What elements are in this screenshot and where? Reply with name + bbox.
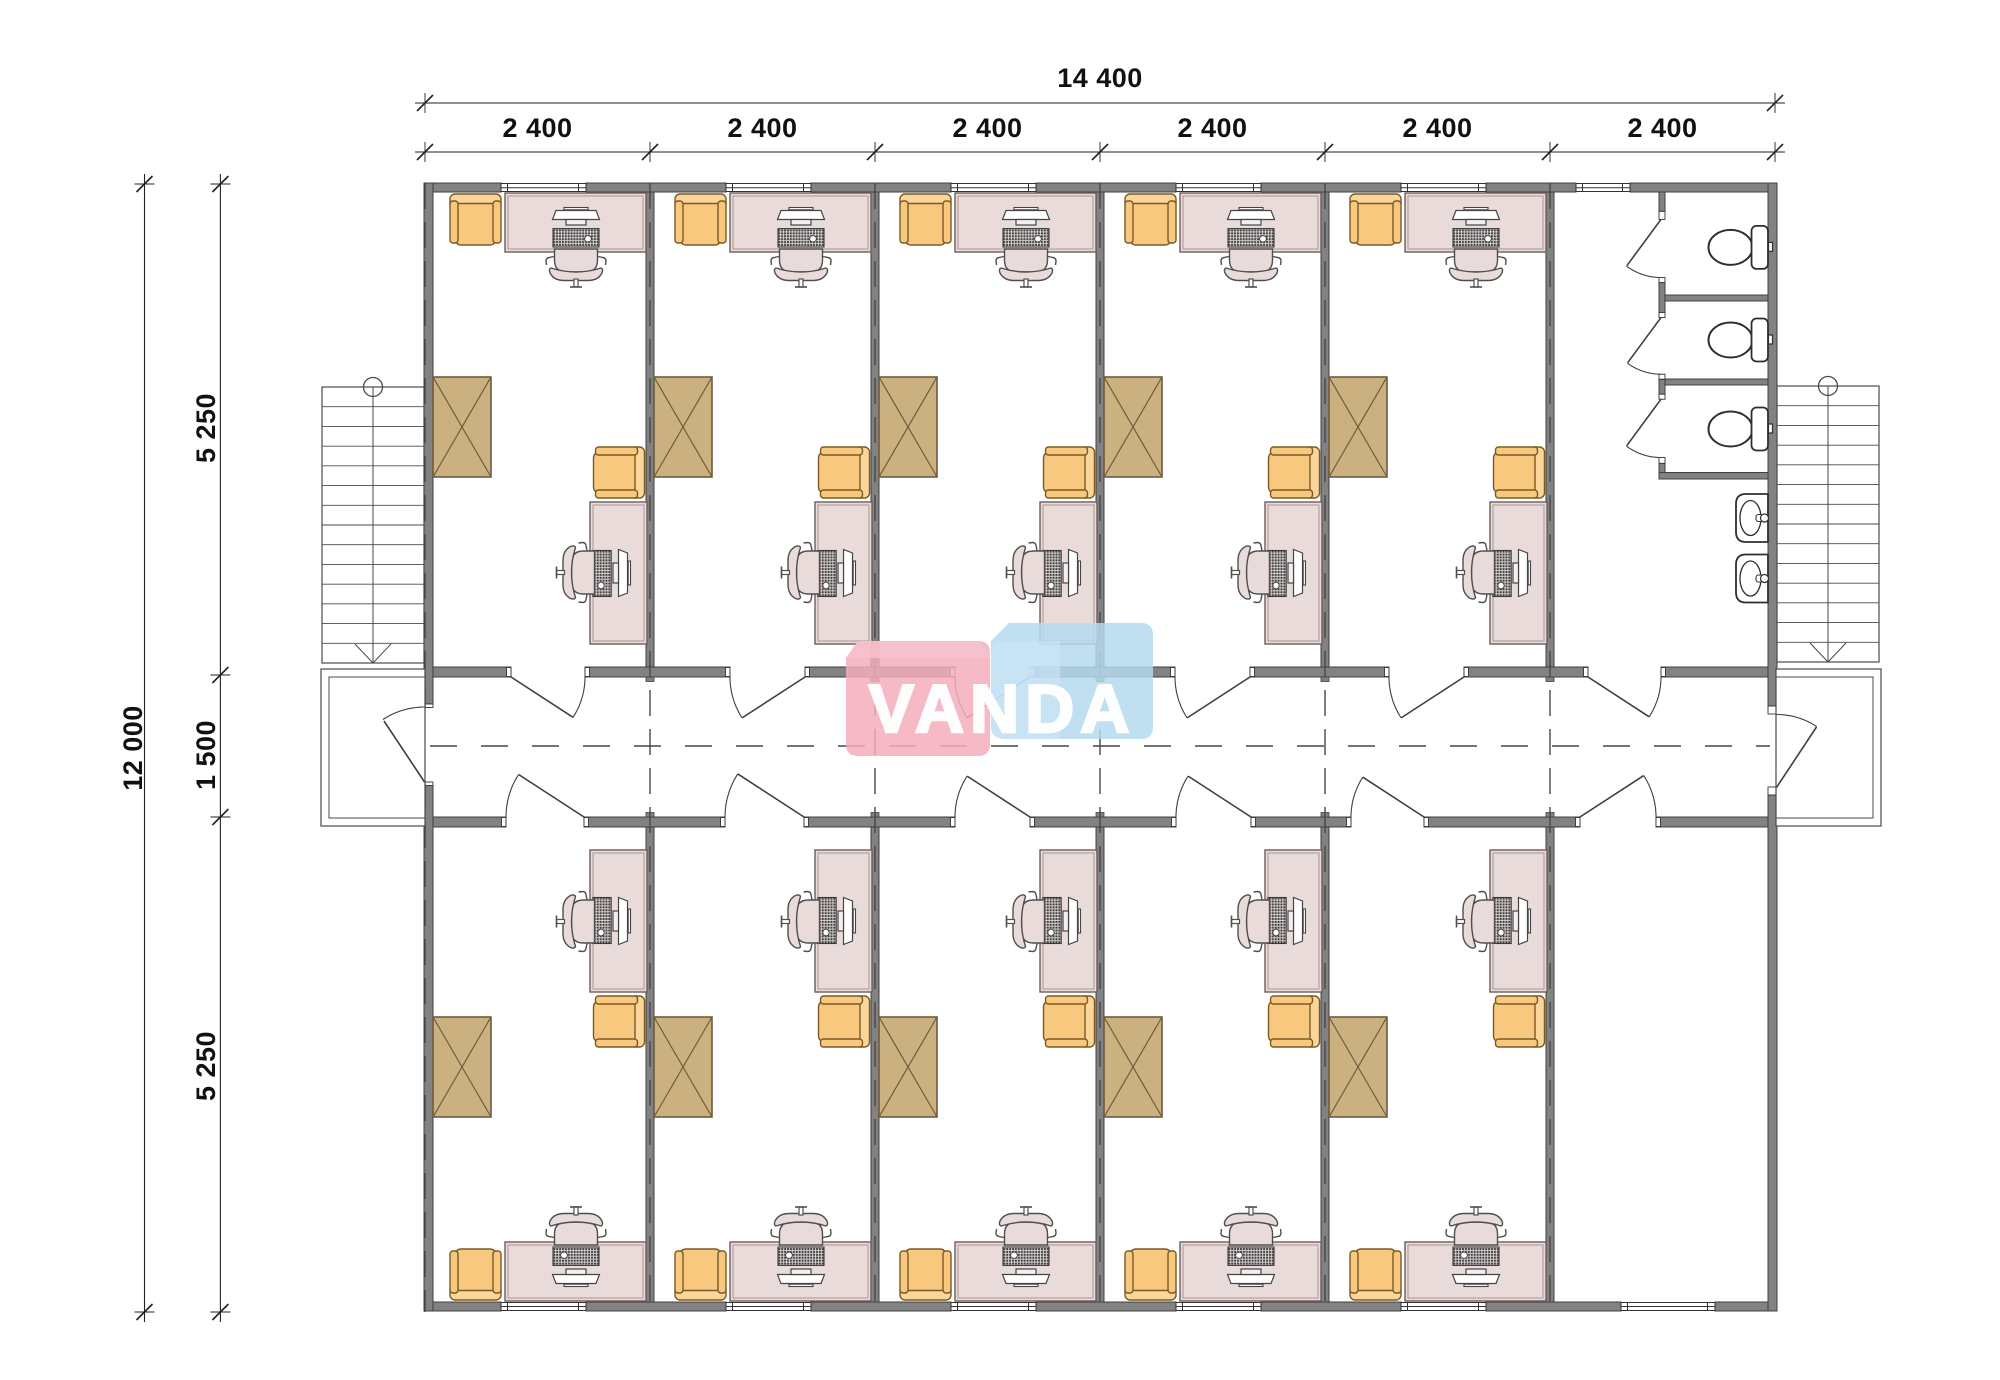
- svg-text:12 000: 12 000: [118, 705, 148, 791]
- svg-text:2 400: 2 400: [1177, 113, 1247, 143]
- svg-text:2 400: 2 400: [727, 113, 797, 143]
- svg-text:1 500: 1 500: [191, 720, 221, 790]
- svg-text:2 400: 2 400: [1627, 113, 1697, 143]
- svg-text:2 400: 2 400: [1402, 113, 1472, 143]
- svg-text:14 400: 14 400: [1057, 63, 1143, 93]
- svg-text:VANDA: VANDA: [869, 671, 1136, 747]
- svg-text:5 250: 5 250: [191, 1031, 221, 1101]
- svg-text:5 250: 5 250: [191, 393, 221, 463]
- svg-text:2 400: 2 400: [952, 113, 1022, 143]
- svg-text:2 400: 2 400: [502, 113, 572, 143]
